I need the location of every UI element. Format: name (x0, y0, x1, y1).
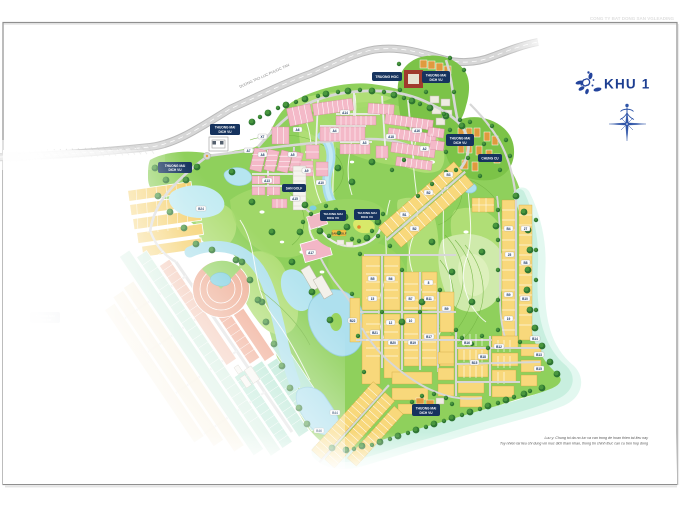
svg-text:B17: B17 (426, 335, 432, 339)
svg-text:B9: B9 (506, 293, 510, 297)
svg-text:B18: B18 (480, 355, 486, 359)
svg-text:B13: B13 (536, 353, 542, 357)
svg-text:X7: X7 (261, 135, 265, 139)
svg-text:B7: B7 (408, 297, 412, 301)
svg-text:THUONG MAI: THUONG MAI (450, 136, 471, 140)
svg-text:B22: B22 (350, 319, 356, 323)
svg-text:B21: B21 (372, 331, 378, 335)
svg-text:B9: B9 (444, 307, 448, 311)
svg-text:Tuy nhien tai lieu chi dung vo: Tuy nhien tai lieu chi dung voi muc dich… (500, 442, 648, 446)
svg-text:B19: B19 (410, 341, 416, 345)
svg-text:DICH VU: DICH VU (361, 215, 373, 219)
svg-text:B6: B6 (388, 277, 392, 281)
svg-text:DICH VU: DICH VU (429, 78, 443, 82)
svg-text:TRUONG HOC: TRUONG HOC (375, 75, 399, 79)
svg-text:B12: B12 (496, 345, 502, 349)
svg-text:B8: B8 (523, 261, 527, 265)
svg-text:B5: B5 (370, 277, 374, 281)
svg-text:19: 19 (507, 317, 511, 321)
svg-text:B15: B15 (472, 361, 478, 365)
svg-text:A16: A16 (414, 129, 420, 133)
svg-text:B15: B15 (536, 367, 542, 371)
svg-text:B16: B16 (464, 341, 470, 345)
svg-text:12: 12 (389, 321, 393, 325)
svg-text:B11: B11 (426, 297, 432, 301)
svg-text:B10: B10 (522, 297, 528, 301)
svg-text:A4: A4 (332, 129, 336, 133)
svg-text:8: 8 (428, 281, 430, 285)
svg-text:B4: B4 (506, 227, 510, 231)
svg-text:B2: B2 (412, 227, 416, 231)
svg-text:A6: A6 (295, 128, 299, 132)
svg-text:27: 27 (524, 227, 528, 231)
svg-text:A14: A14 (342, 111, 348, 115)
svg-text:B3: B3 (446, 173, 450, 177)
svg-text:25: 25 (508, 253, 512, 257)
svg-text:B1: B1 (402, 213, 406, 217)
svg-text:A18: A18 (388, 135, 394, 139)
svg-text:B14: B14 (532, 337, 538, 341)
svg-text:CHUNG CU: CHUNG CU (481, 157, 499, 161)
svg-text:KHU 1: KHU 1 (604, 77, 651, 92)
svg-text:B2: B2 (426, 191, 430, 195)
svg-text:15: 15 (371, 297, 375, 301)
svg-text:B20: B20 (390, 341, 396, 345)
svg-text:Luu y: Chung toi da no luc va: Luu y: Chung toi da no luc va can trong … (545, 436, 649, 440)
svg-text:CONG TY BAT DONG SAN VGLEADING: CONG TY BAT DONG SAN VGLEADING (590, 16, 675, 21)
svg-text:A2: A2 (422, 147, 426, 151)
svg-text:DICH VU: DICH VU (453, 141, 467, 145)
svg-text:DICH VU: DICH VU (218, 130, 232, 134)
svg-text:10: 10 (409, 319, 413, 323)
svg-text:A3: A3 (362, 141, 366, 145)
svg-text:THUONG MAI: THUONG MAI (426, 73, 447, 77)
